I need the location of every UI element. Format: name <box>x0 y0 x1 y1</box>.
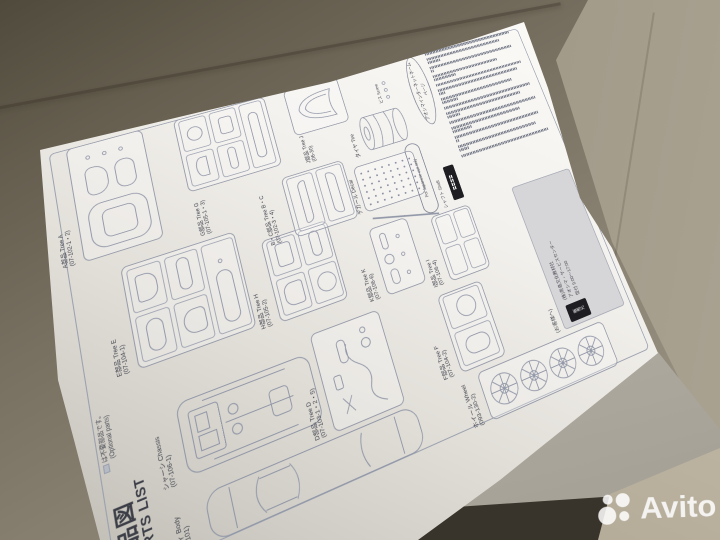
avito-logo-icon <box>595 491 636 528</box>
avito-watermark: Avito <box>595 488 717 528</box>
photo-of-parts-list-in-box: 部品図 PARTS LIST は不要部品です。 (Optional parts)… <box>0 0 720 540</box>
seller-badge: 販売元 <box>565 298 592 323</box>
avito-watermark-text: Avito <box>639 488 717 527</box>
